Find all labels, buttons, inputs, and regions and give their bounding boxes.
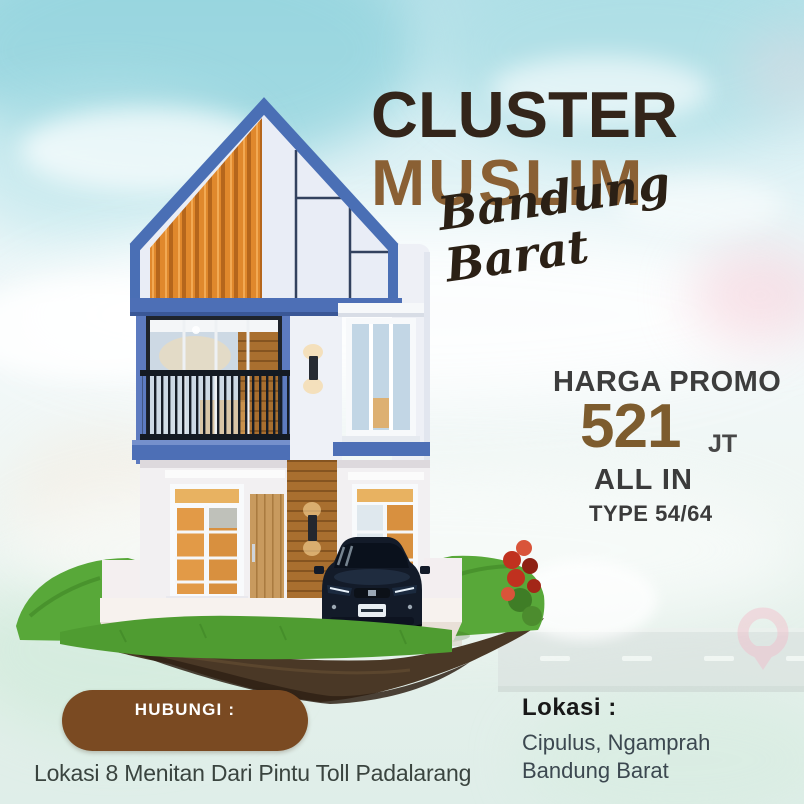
contact-button[interactable]: HUBUNGI : [62,690,308,751]
price-unit: JT [708,430,737,459]
contact-button-label: HUBUNGI : [135,700,236,720]
location-line: Cipulus, Ngamprah [522,730,710,756]
promo-all-in: ALL IN [594,464,693,497]
title-line-1: CLUSTER [371,82,678,147]
promo-house-type: TYPE 54/64 [589,501,713,527]
poster: CLUSTER MUSLIM Bandung Barat HARGA PROMO… [0,0,804,804]
price-value: 521 [580,396,680,458]
footer-note: Lokasi 8 Menitan Dari Pintu Toll Padalar… [34,760,471,787]
location-heading: Lokasi : [522,694,617,722]
location-line: Bandung Barat [522,758,669,784]
